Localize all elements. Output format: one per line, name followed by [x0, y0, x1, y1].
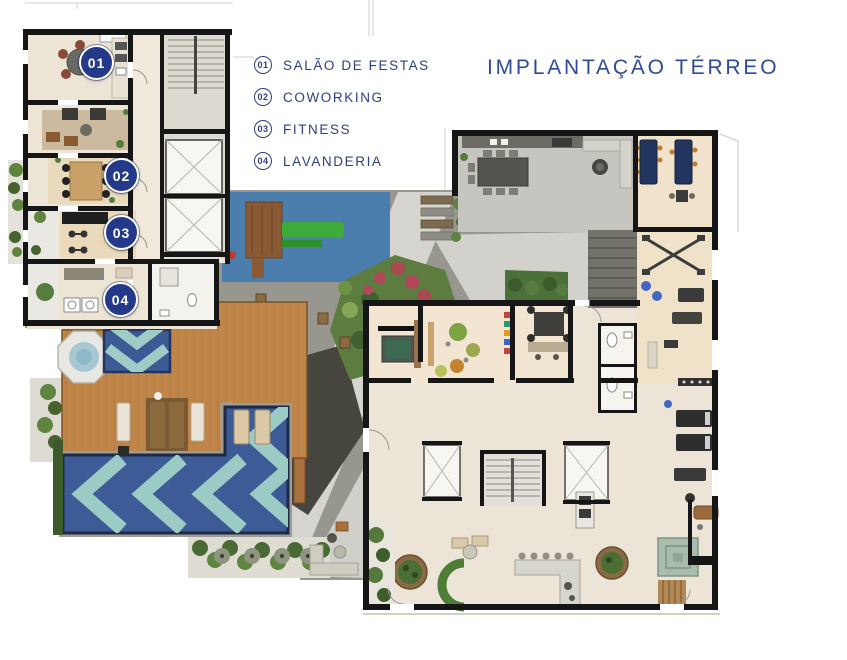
hatched-court — [588, 230, 637, 308]
pool-ladder — [118, 446, 129, 455]
plan-badge-02-coworking: 02 — [104, 158, 139, 193]
wing-bathroom — [152, 262, 214, 324]
floorplan-page: IMPLANTAÇÃO TÉRREO 01 SALÃO DE FESTAS 02… — [0, 0, 847, 660]
legend-number-02: 02 — [254, 88, 272, 106]
legend-label-lavanderia: LAVANDERIA — [283, 154, 383, 169]
legend-label-fitness: FITNESS — [283, 122, 351, 137]
playground — [222, 192, 390, 282]
bottom-garden — [188, 537, 330, 578]
pool-hedge — [53, 440, 63, 535]
slide — [282, 222, 344, 238]
media-room-furniture — [378, 320, 421, 368]
plan-badge-03-fitness: 03 — [104, 215, 139, 250]
legend-item-salao-de-festas: 01 SALÃO DE FESTAS — [254, 49, 430, 81]
hot-tub — [58, 331, 110, 383]
plan-badge-04-lavanderia: 04 — [103, 282, 138, 317]
legend-number-01: 01 — [254, 56, 272, 74]
lounge-furniture — [42, 108, 132, 150]
legend-item-lavanderia: 04 LAVANDERIA — [254, 145, 430, 177]
legend-number-04: 04 — [254, 152, 272, 170]
wood-slats — [658, 580, 686, 606]
legend-item-coworking: 02 COWORKING — [254, 81, 430, 113]
legend-item-fitness: 03 FITNESS — [254, 113, 430, 145]
page-title: IMPLANTAÇÃO TÉRREO — [487, 56, 787, 80]
legend-label-salao-de-festas: SALÃO DE FESTAS — [283, 58, 430, 73]
small-pool — [104, 322, 170, 372]
legend-number-03: 03 — [254, 120, 272, 138]
plan-badge-01-salao-de-festas: 01 — [79, 45, 114, 80]
gym-bathrooms — [600, 325, 636, 411]
legend: 01 SALÃO DE FESTAS 02 COWORKING 03 FITNE… — [254, 49, 430, 177]
legend-label-coworking: COWORKING — [283, 90, 384, 105]
